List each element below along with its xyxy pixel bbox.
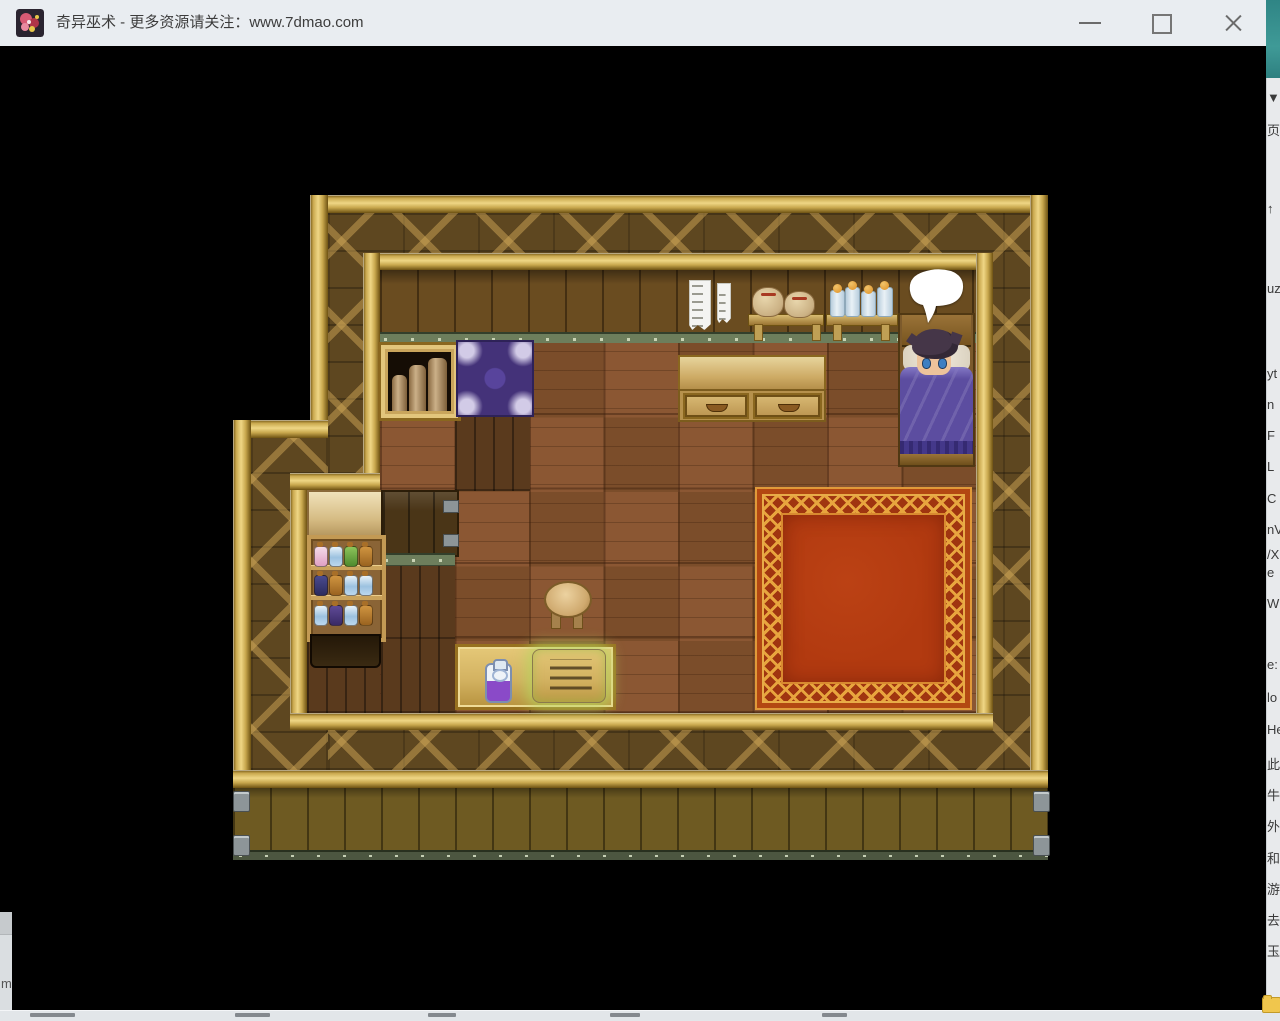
paper-talisman (717, 283, 731, 323)
potion-bottle (329, 605, 343, 626)
outer-frame-right (1030, 195, 1048, 788)
potion-bottle (359, 605, 373, 626)
close-button[interactable] (1210, 0, 1256, 46)
window-edge-text-fragment: 此 (1267, 754, 1280, 773)
bookshelf-recess (388, 352, 451, 411)
window-edge-text-fragment: 页 (1267, 120, 1280, 139)
window-edge-text-fragment: uz (1267, 281, 1280, 296)
clipped-text-mark (428, 1013, 456, 1017)
window-edge-text-fragment: 玉 (1267, 941, 1280, 960)
candle-jar (845, 287, 860, 317)
window-edge-text-fragment: 外 (1267, 816, 1280, 835)
exterior-baseboard (233, 850, 1048, 860)
book-scroll (409, 365, 426, 411)
stool-top (544, 581, 592, 618)
candle-jar (830, 290, 845, 317)
burlap-sack (752, 287, 784, 317)
character-eye (922, 358, 931, 369)
clipped-text-mark (235, 1013, 270, 1017)
title-bar: 奇异巫术 - 更多资源请关注：www.7dmao.com (0, 0, 1266, 46)
window-edge-text-fragment: He (1267, 722, 1280, 737)
stool (544, 581, 588, 629)
window-edge-text-fragment: C (1267, 491, 1276, 506)
outer-frame-top (310, 195, 1048, 213)
purple-blanket (900, 367, 973, 443)
outer-frame-left-upper (310, 195, 328, 438)
bed-foot-rail (900, 454, 973, 465)
screen: 奇异巫术 - 更多资源请关注：www.7dmao.com ▼页↑uzytnFLC… (0, 0, 1280, 1020)
background-window-left-edge: m (0, 912, 12, 1020)
window-edge-text-fragment: e: (1267, 657, 1278, 672)
inner-frame-right (976, 253, 993, 730)
potion-bottle (329, 546, 343, 567)
window-edge-text-fragment: /X (1267, 547, 1279, 562)
candle-jar (877, 287, 893, 317)
clipped-text-mark (30, 1013, 75, 1017)
maximize-icon (1152, 14, 1172, 34)
window-edge-text-fragment: ↑ (1267, 201, 1274, 216)
wall-base-rail (381, 553, 455, 566)
app-icon[interactable] (16, 9, 44, 37)
folder-icon[interactable] (1262, 997, 1280, 1013)
window-edge-text-fragment: 牛 (1267, 785, 1280, 804)
left-edge-text-fragment: m (1, 976, 12, 991)
inner-frame-top (363, 253, 993, 270)
character-eye (938, 358, 947, 369)
potion-bottle (344, 546, 358, 567)
background-window-text-column: ▼页↑uzytnFLCnV/XeWe:loHe此牛外和游去玉新建文 (1266, 0, 1280, 1020)
window-edge-text-fragment: F (1267, 428, 1275, 443)
inner-frame-extension-top (290, 473, 380, 490)
burlap-sack (784, 291, 815, 318)
clipped-text-mark (822, 1013, 847, 1017)
shelf-leg (881, 324, 890, 341)
desk-top (678, 355, 826, 393)
wall-hinge (233, 791, 250, 812)
shelf-leg (812, 324, 821, 341)
drawer (753, 393, 822, 419)
cabinet-stand (310, 634, 381, 668)
window-edge-text-fragment: 游 (1267, 879, 1280, 898)
potion-bottle (359, 575, 373, 596)
book-scroll (428, 358, 447, 411)
red-carpet (755, 487, 972, 710)
bottom-window-edge (0, 1010, 1280, 1021)
potion-bottle (314, 546, 328, 567)
potion-bottle (329, 575, 343, 596)
beige-counter (307, 490, 384, 539)
dark-floor-tile (455, 417, 530, 491)
bed (898, 313, 975, 467)
purple-rug (456, 340, 534, 417)
wall-hinge (1033, 791, 1050, 812)
window-title: 奇异巫术 - 更多资源请关注：www.7dmao.com (56, 0, 364, 46)
drawer (683, 393, 749, 419)
book-scroll (392, 375, 407, 411)
left-edge-band (0, 912, 12, 935)
door-hinge (443, 534, 459, 547)
wall-hinge (1033, 835, 1050, 856)
shelf-leg (754, 324, 763, 341)
drawer-handle (706, 404, 728, 412)
game-viewport[interactable] (0, 46, 1266, 1010)
window-edge-text-fragment: L (1267, 459, 1274, 474)
clipped-text-mark (610, 1013, 640, 1017)
door-panel (381, 490, 459, 557)
minimize-button[interactable] (1067, 0, 1113, 46)
potion-bottle (314, 605, 328, 626)
window-edge-text-fragment: W (1267, 596, 1279, 611)
paper-talisman (689, 280, 711, 330)
window-edge-text-fragment: n (1267, 397, 1274, 412)
exterior-plank-wall (233, 788, 1048, 850)
window-edge-text-fragment: yt (1267, 366, 1277, 381)
glowing-scroll (532, 649, 606, 703)
purple-potion (485, 663, 512, 703)
candle-jar (861, 291, 876, 317)
door-hinge (443, 500, 459, 513)
window-edge-text-fragment: nV (1267, 522, 1280, 537)
wall-hinge (233, 835, 250, 856)
character-hair (912, 329, 958, 359)
shelf-leg (833, 324, 842, 341)
outer-frame-bottom-rail (233, 770, 1048, 788)
minimize-icon (1079, 22, 1101, 24)
inner-frame-bottom (290, 713, 993, 730)
maximize-button[interactable] (1139, 0, 1185, 46)
bookshelf (378, 342, 461, 421)
potion-bottle (359, 546, 373, 567)
potion-bottle (344, 605, 358, 626)
window-edge-text-fragment: 去 (1267, 910, 1280, 929)
potion-cabinet (307, 535, 386, 642)
inner-frame-extension-left (290, 490, 307, 730)
blanket-fringe (900, 441, 973, 454)
outer-frame-extension-left (233, 420, 251, 788)
window-edge-text-fragment: ▼ (1267, 90, 1280, 105)
game-map (233, 195, 1048, 858)
window-edge-text-fragment: lo (1267, 690, 1277, 705)
potion-bottle (344, 575, 358, 596)
drawer-handle (778, 404, 800, 412)
carpet-field (781, 513, 946, 684)
desk-drawers (678, 389, 826, 422)
table (455, 644, 616, 710)
window-edge-text-fragment: 和 (1267, 848, 1280, 867)
dark-floor-tile (381, 563, 455, 713)
speech-bubble (907, 268, 967, 326)
window-edge-text-fragment: e (1267, 565, 1274, 580)
potion-bottle (314, 575, 328, 596)
